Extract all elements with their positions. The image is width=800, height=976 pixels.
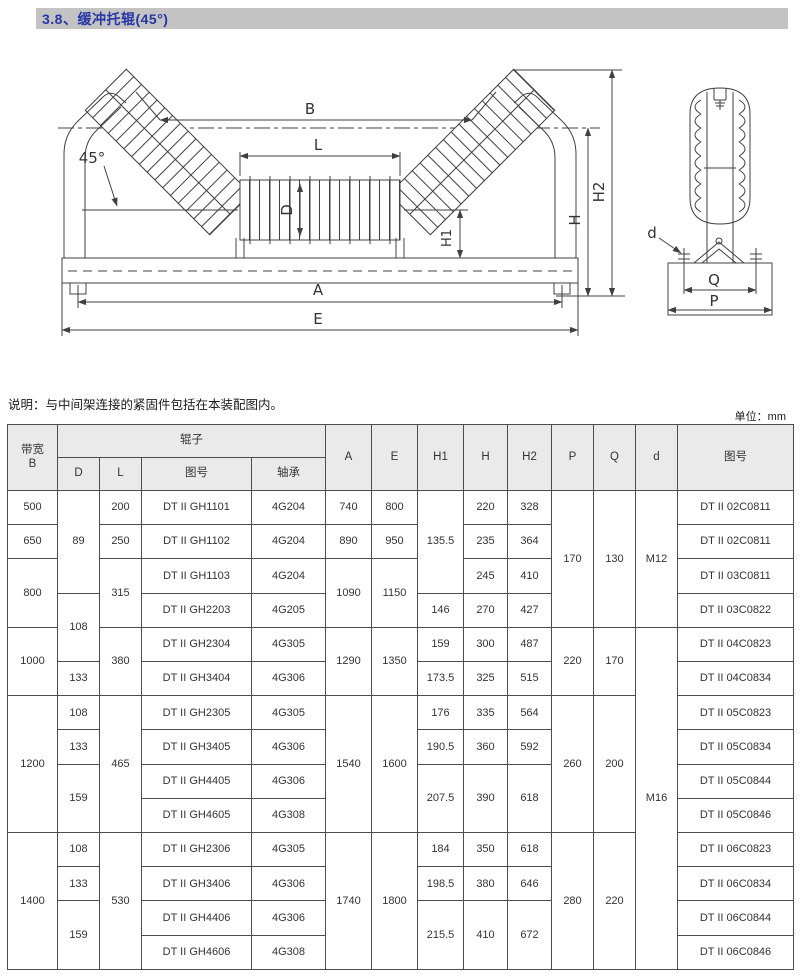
spec-cell: DT II 05C0834 [678,730,794,764]
side-v-support [694,242,744,263]
spec-row: 1000380DT II GH23044G3051290135015930048… [8,627,794,661]
section-title-bar: 3.8、缓冲托辊(45°) [36,8,788,29]
label-L: L [314,136,323,154]
spec-cell: 135.5 [418,491,464,594]
spec-cell: 4G306 [252,662,326,696]
spec-cell: 890 [326,525,372,559]
col-A: A [326,425,372,491]
col-roller-bearing: 轴承 [252,458,326,491]
spec-cell: 159 [58,764,100,832]
spec-cell: 133 [58,730,100,764]
spec-cell: 650 [8,525,58,559]
spec-cell: 280 [552,833,594,970]
label-D: D [278,204,296,216]
spec-cell: 4G306 [252,901,326,935]
spec-cell: DT II 04C0823 [678,627,794,661]
spec-cell: 220 [464,491,508,525]
spec-table: 带宽 B 辊子 A E H1 H H2 P Q d 图号 D L 图号 轴承 5… [7,424,794,970]
unit-label: 单位：mm [735,408,786,424]
spec-cell: 190.5 [418,730,464,764]
spec-cell: 1000 [8,627,58,695]
spec-cell: DT II GH3406 [142,867,252,901]
label-angle: 45° [79,149,106,167]
spec-cell: DT II 03C0811 [678,559,794,593]
spec-cell: 133 [58,662,100,696]
spec-cell: 1540 [326,696,372,833]
spec-cell: 89 [58,491,100,594]
spec-cell: 380 [100,627,142,695]
spec-cell: 220 [552,627,594,695]
spec-cell: DT II 06C0846 [678,935,794,969]
spec-cell: 198.5 [418,867,464,901]
spec-cell: 207.5 [418,764,464,832]
spec-cell: DT II 06C0834 [678,867,794,901]
spec-cell: DT II GH1101 [142,491,252,525]
spec-cell: DT II GH2203 [142,593,252,627]
col-P: P [552,425,594,491]
spec-cell: 1600 [372,696,418,833]
spec-cell: 146 [418,593,464,627]
spec-cell: 325 [464,662,508,696]
spec-cell: 1200 [8,696,58,833]
spec-cell: 618 [508,833,552,867]
spec-cell: DT II 02C0811 [678,525,794,559]
section-title: 3.8、缓冲托辊(45°) [36,9,168,29]
spec-cell: 235 [464,525,508,559]
dim-B-extensions [136,92,496,120]
side-pivot [716,238,722,244]
spec-cell: 740 [326,491,372,525]
spec-cell: 4G308 [252,798,326,832]
spec-row: 50089200DT II GH11014G204740800135.52203… [8,491,794,525]
spec-cell: 646 [508,867,552,901]
spec-cell: 130 [594,491,636,628]
col-bandwidth-line2: B [8,458,57,471]
col-drawing-no: 图号 [678,425,794,491]
spec-cell: DT II GH4605 [142,798,252,832]
spec-cell: 410 [508,559,552,593]
spec-cell: 315 [100,559,142,627]
spec-cell: 4G306 [252,730,326,764]
spec-cell: DT II 03C0822 [678,593,794,627]
spec-cell: DT II GH3404 [142,662,252,696]
spec-cell: 1090 [326,559,372,627]
spec-cell: 564 [508,696,552,730]
spec-cell: 380 [464,867,508,901]
label-A: A [313,281,324,299]
spec-cell: 465 [100,696,142,833]
spec-cell: DT II 06C0844 [678,901,794,935]
side-shaft-lines [707,92,733,263]
spec-cell: 390 [464,764,508,832]
col-roller-drawing-no: 图号 [142,458,252,491]
spec-cell: 200 [100,491,142,525]
label-d: d [647,224,657,242]
spec-cell: 515 [508,662,552,696]
col-d: d [636,425,678,491]
spec-cell: 4G305 [252,627,326,661]
spec-cell: 4G308 [252,935,326,969]
col-roller-group: 辊子 [58,425,326,458]
spec-cell: 1290 [326,627,372,695]
spec-cell: 800 [8,559,58,627]
spec-cell: 170 [594,627,636,695]
spec-cell: 1150 [372,559,418,627]
spec-cell: 4G204 [252,559,326,593]
spec-cell: 592 [508,730,552,764]
spec-cell: 159 [58,901,100,970]
spec-cell: 672 [508,901,552,970]
spec-cell: DT II GH2305 [142,696,252,730]
spec-cell: DT II 02C0811 [678,491,794,525]
spec-cell: DT II 05C0846 [678,798,794,832]
spec-cell: DT II 05C0844 [678,764,794,798]
spec-cell: 220 [594,833,636,970]
spec-table-head: 带宽 B 辊子 A E H1 H H2 P Q d 图号 D L 图号 轴承 [8,425,794,491]
label-B: B [305,100,315,118]
spec-cell: 108 [58,833,100,867]
spec-cell: 108 [58,696,100,730]
spec-cell: DT II GH1102 [142,525,252,559]
spec-cell: 108 [58,593,100,661]
spec-cell: 1400 [8,833,58,970]
spec-cell: DT II GH2306 [142,833,252,867]
label-H1: H1 [440,229,455,247]
spec-cell: M16 [636,627,678,969]
spec-cell: 200 [594,696,636,833]
spec-cell: DT II 05C0823 [678,696,794,730]
main-view [58,69,625,336]
spec-cell: 4G204 [252,525,326,559]
spec-cell: 4G305 [252,833,326,867]
col-roller-D: D [58,458,100,491]
spec-cell: 950 [372,525,418,559]
center-roller [240,180,400,240]
spec-cell: 487 [508,627,552,661]
spec-cell: 133 [58,867,100,901]
label-E: E [313,310,322,328]
spec-cell: 170 [552,491,594,628]
label-H2: H2 [590,182,608,203]
spec-cell: DT II 04C0834 [678,662,794,696]
spec-cell: DT II GH4606 [142,935,252,969]
spec-cell: DT II GH4406 [142,901,252,935]
spec-cell: DT II GH1103 [142,559,252,593]
spec-cell: 427 [508,593,552,627]
spec-cell: 530 [100,833,142,970]
note-text: 说明：与中间架连接的紧固件包括在本装配图内。 [8,394,283,413]
technical-drawing: B L D 45° H1 H H2 A E Q P d [0,42,800,392]
spec-cell: 184 [418,833,464,867]
side-roller-ribs-right [739,100,745,212]
spec-cell: 173.5 [418,662,464,696]
label-P: P [709,292,718,310]
spec-cell: 176 [418,696,464,730]
side-top-slot [714,88,726,110]
spec-cell: 250 [100,525,142,559]
col-bandwidth-line1: 带宽 [8,444,57,457]
spec-cell: DT II 06C0823 [678,833,794,867]
spec-cell: 4G305 [252,696,326,730]
spec-cell: 4G306 [252,764,326,798]
spec-cell: 245 [464,559,508,593]
spec-cell: 500 [8,491,58,525]
spec-cell: 800 [372,491,418,525]
spec-cell: 360 [464,730,508,764]
label-H: H [566,214,584,225]
side-roller-ribs-left [695,100,701,212]
spec-cell: 618 [508,764,552,832]
col-roller-L: L [100,458,142,491]
dim-d-leader [659,238,681,253]
spec-cell: 1800 [372,833,418,970]
spec-cell: M12 [636,491,678,628]
spec-cell: 1350 [372,627,418,695]
spec-cell: DT II GH4405 [142,764,252,798]
angle-leader [104,166,117,206]
col-H1: H1 [418,425,464,491]
spec-table-body: 50089200DT II GH11014G204740800135.52203… [8,491,794,970]
spec-cell: DT II GH3405 [142,730,252,764]
label-Q: Q [708,271,720,289]
support-legs [236,238,404,258]
spec-cell: 350 [464,833,508,867]
col-E: E [372,425,418,491]
spec-cell: 300 [464,627,508,661]
col-bandwidth: 带宽 B [8,425,58,491]
spec-cell: 335 [464,696,508,730]
spec-cell: 1740 [326,833,372,970]
spec-cell: 4G204 [252,491,326,525]
col-Q: Q [594,425,636,491]
base-channel [62,258,578,283]
spec-cell: 260 [552,696,594,833]
spec-cell: 410 [464,901,508,970]
col-H: H [464,425,508,491]
col-H2: H2 [508,425,552,491]
spec-cell: 4G306 [252,867,326,901]
spec-cell: 328 [508,491,552,525]
spec-cell: 364 [508,525,552,559]
spec-cell: 215.5 [418,901,464,970]
spec-cell: 159 [418,627,464,661]
spec-cell: DT II GH2304 [142,627,252,661]
spec-cell: 270 [464,593,508,627]
spec-cell: 4G205 [252,593,326,627]
side-bolts [678,248,762,294]
